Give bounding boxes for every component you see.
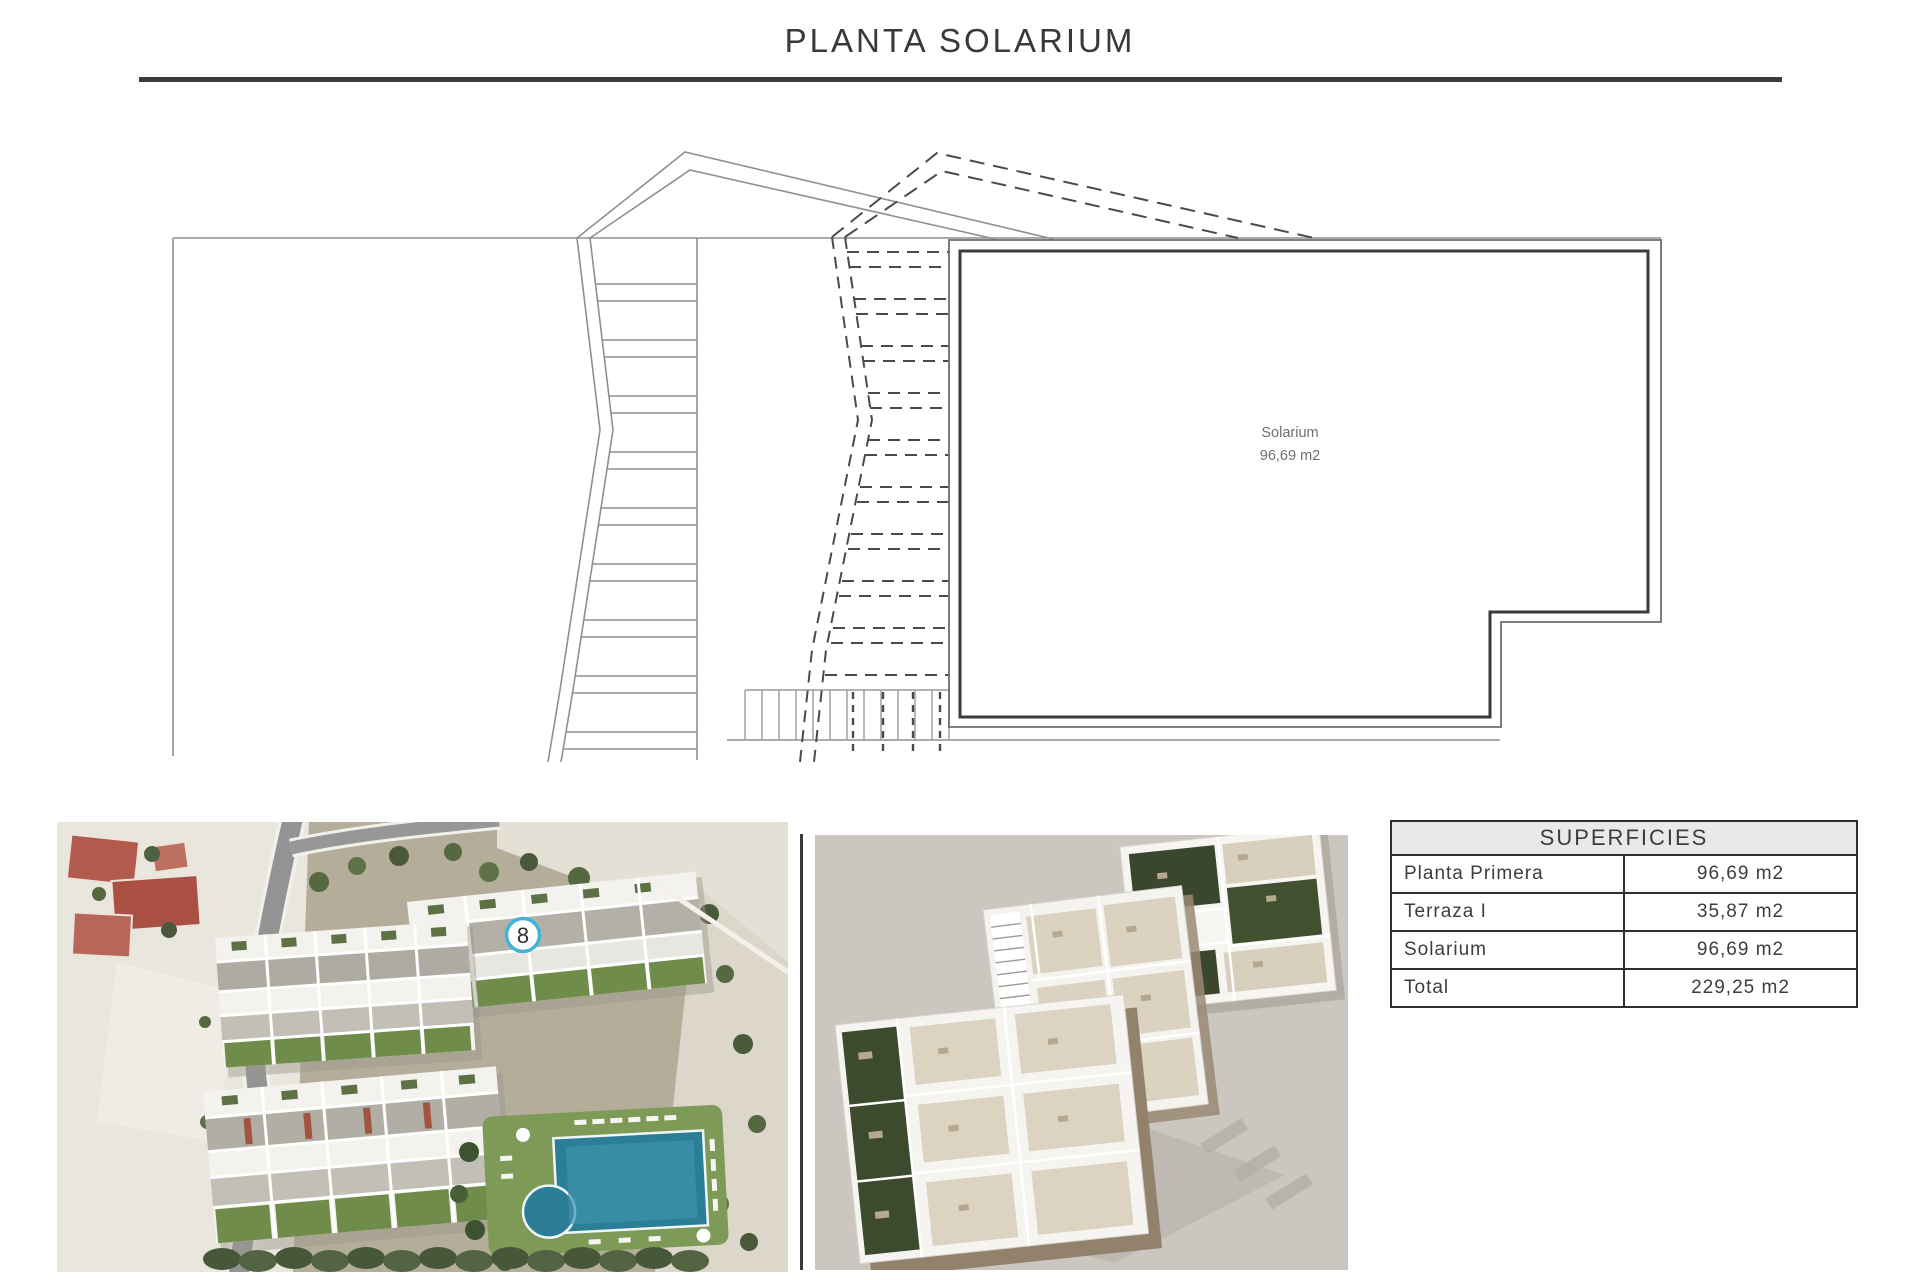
row-value: 96,69 m2 (1624, 855, 1857, 893)
axonometric-render-image (815, 835, 1348, 1270)
row-value: 229,25 m2 (1624, 969, 1857, 1007)
roof-outline-dashed (832, 153, 1314, 238)
table-title: SUPERFICIES (1391, 821, 1857, 855)
unit-number-text: 8 (517, 923, 529, 948)
unit-number-badge: 8 (507, 919, 540, 952)
plot-boundary-lines (173, 238, 1661, 756)
roof-outline-solid (577, 152, 1053, 239)
table-row: Terraza I 35,87 m2 (1391, 893, 1857, 931)
table-row: Total 229,25 m2 (1391, 969, 1857, 1007)
bottom-stair-dashed (853, 692, 940, 757)
bottom-stair (745, 690, 950, 740)
room-area-text: 96,69 m2 (1260, 448, 1320, 464)
document-page: PLANTA SOLARIUM (0, 0, 1920, 1280)
floor-plan-svg: Solarium 96,69 m2 (0, 100, 1920, 815)
row-label: Terraza I (1391, 893, 1624, 931)
table-row: Solarium 96,69 m2 (1391, 931, 1857, 969)
table-header-row: SUPERFICIES (1391, 821, 1857, 855)
floor-plate-lower (835, 993, 1162, 1270)
table-row: Planta Primera 96,69 m2 (1391, 855, 1857, 893)
row-value: 35,87 m2 (1624, 893, 1857, 931)
row-label: Planta Primera (1391, 855, 1624, 893)
superficies-table: SUPERFICIES Planta Primera 96,69 m2 Terr… (1390, 820, 1858, 1008)
floor-plan-drawing: Solarium 96,69 m2 (0, 100, 1920, 815)
row-value: 96,69 m2 (1624, 931, 1857, 969)
aerial-site-photo: 8 (57, 822, 788, 1272)
room-name-text: Solarium (1261, 425, 1318, 441)
staircase-dashed (800, 237, 949, 762)
pool-area (482, 1104, 729, 1256)
row-label: Solarium (1391, 931, 1624, 969)
staircase-solid (548, 238, 697, 762)
solarium-room-label: Solarium 96,69 m2 (1260, 425, 1320, 464)
axonometric-render-svg (815, 835, 1348, 1270)
aerial-photo-svg: 8 (57, 822, 788, 1272)
title-rule (139, 77, 1782, 82)
image-divider-line (800, 834, 803, 1270)
page-title: PLANTA SOLARIUM (0, 22, 1920, 60)
row-label: Total (1391, 969, 1624, 1007)
solarium-outline-inner (960, 251, 1648, 717)
building-block-center (215, 920, 482, 1078)
solarium-outline-outer (949, 240, 1661, 727)
